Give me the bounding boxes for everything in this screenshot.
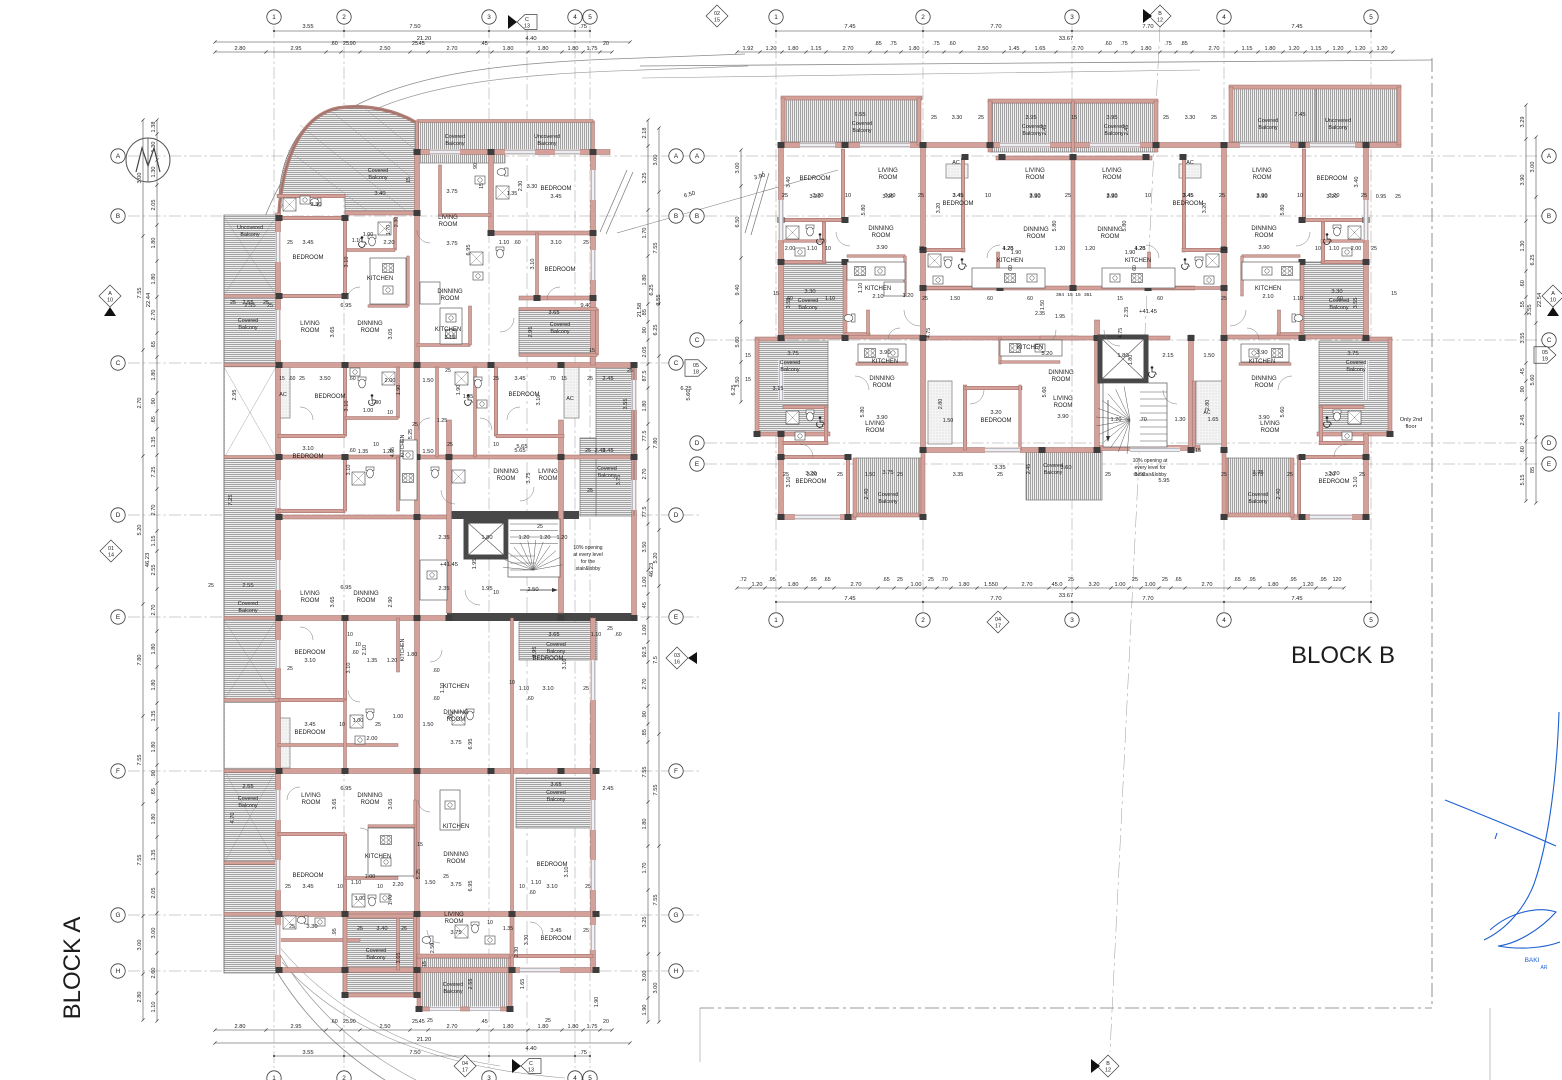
svg-text:1.75: 1.75 xyxy=(587,1024,598,1030)
svg-text:ROOM: ROOM xyxy=(361,800,380,806)
svg-text:3.75: 3.75 xyxy=(450,930,461,936)
svg-text:25: 25 xyxy=(583,240,589,246)
svg-text:1.30: 1.30 xyxy=(1520,241,1526,252)
svg-text:KITCHEN: KITCHEN xyxy=(365,854,391,860)
svg-text:.85: .85 xyxy=(874,41,881,47)
svg-text:4.70: 4.70 xyxy=(230,813,236,824)
svg-text:3.10: 3.10 xyxy=(346,465,352,476)
svg-text:+41.45: +41.45 xyxy=(440,562,458,568)
svg-text:3.10: 3.10 xyxy=(344,401,350,412)
svg-text:2.30: 2.30 xyxy=(394,217,400,228)
svg-text:H: H xyxy=(674,968,679,975)
svg-text:3.90: 3.90 xyxy=(1256,350,1267,356)
svg-text:LIVING: LIVING xyxy=(300,321,320,327)
svg-text:1.20: 1.20 xyxy=(1333,46,1344,52)
svg-text:BEDROOM: BEDROOM xyxy=(1172,201,1203,207)
svg-text:LIVING: LIVING xyxy=(438,215,458,221)
svg-text:2.20: 2.20 xyxy=(383,240,394,246)
svg-text:E: E xyxy=(695,461,699,468)
svg-text:.75: .75 xyxy=(932,41,939,47)
svg-text:1.80: 1.80 xyxy=(151,238,157,249)
svg-text:1.10: 1.10 xyxy=(351,880,362,886)
svg-text:.95: .95 xyxy=(1319,577,1326,583)
svg-text:5.65: 5.65 xyxy=(516,444,527,450)
svg-text:25: 25 xyxy=(1359,472,1365,478)
svg-text:1.25: 1.25 xyxy=(437,418,448,424)
svg-text:.65: .65 xyxy=(151,416,157,424)
svg-text:1.50: 1.50 xyxy=(1040,300,1046,310)
svg-text:25: 25 xyxy=(1287,472,1293,478)
svg-text:7.55: 7.55 xyxy=(137,855,143,866)
svg-text:3.30: 3.30 xyxy=(1185,115,1196,121)
svg-text:15: 15 xyxy=(1075,292,1081,298)
svg-text:.60: .60 xyxy=(348,376,355,382)
svg-text:7.80: 7.80 xyxy=(653,438,659,449)
svg-text:2.70: 2.70 xyxy=(151,505,157,516)
svg-text:1.80: 1.80 xyxy=(503,46,514,52)
svg-text:AC: AC xyxy=(279,392,287,398)
svg-text:3.75: 3.75 xyxy=(1253,472,1264,478)
svg-text:7.70: 7.70 xyxy=(990,596,1001,602)
svg-text:3: 3 xyxy=(487,14,491,21)
svg-text:KITCHEN: KITCHEN xyxy=(865,286,891,292)
svg-text:1.50: 1.50 xyxy=(425,880,436,886)
svg-text:2.70: 2.70 xyxy=(1209,46,1220,52)
svg-text:25: 25 xyxy=(287,240,293,246)
svg-text:3.00: 3.00 xyxy=(137,940,143,951)
svg-text:.65: .65 xyxy=(882,577,889,583)
svg-text:3.75: 3.75 xyxy=(446,189,457,195)
svg-text:stair&lobby: stair&lobby xyxy=(576,566,601,572)
svg-text:Balcony: Balcony xyxy=(443,989,462,995)
svg-text:KITCHEN: KITCHEN xyxy=(872,359,898,365)
svg-text:.60: .60 xyxy=(1520,446,1526,454)
svg-text:1.90: 1.90 xyxy=(594,997,600,1008)
svg-text:2.60: 2.60 xyxy=(151,968,157,979)
svg-text:10% opening at: 10% opening at xyxy=(1133,458,1168,464)
svg-text:1.35: 1.35 xyxy=(358,449,369,455)
svg-text:10: 10 xyxy=(509,680,515,686)
svg-text:5.80: 5.80 xyxy=(1280,205,1286,216)
svg-text:2.00: 2.00 xyxy=(385,378,396,384)
svg-text:.55: .55 xyxy=(1520,301,1526,309)
svg-text:C: C xyxy=(529,1061,533,1067)
svg-text:1.80: 1.80 xyxy=(538,46,549,52)
svg-text:BEDROOM: BEDROOM xyxy=(540,186,571,192)
svg-text:7.50: 7.50 xyxy=(409,1050,420,1056)
svg-text:25: 25 xyxy=(782,193,788,199)
svg-text:KITCHEN: KITCHEN xyxy=(1255,286,1281,292)
svg-text:2.80: 2.80 xyxy=(938,399,944,410)
svg-text:3.10: 3.10 xyxy=(344,257,350,268)
svg-text:25: 25 xyxy=(299,376,305,382)
svg-text:1.00: 1.00 xyxy=(363,232,374,238)
svg-text:5.60: 5.60 xyxy=(686,389,692,400)
svg-text:2.00: 2.00 xyxy=(785,246,796,252)
svg-text:3.20: 3.20 xyxy=(936,203,942,214)
svg-text:2.55: 2.55 xyxy=(244,303,255,309)
svg-text:7.55: 7.55 xyxy=(137,288,143,299)
svg-text:DINNING: DINNING xyxy=(1251,226,1277,232)
svg-text:ROOM: ROOM xyxy=(447,859,466,865)
svg-text:25: 25 xyxy=(1219,193,1225,199)
svg-text:BEDROOM: BEDROOM xyxy=(508,392,539,398)
svg-text:6.95: 6.95 xyxy=(340,303,351,309)
svg-text:3.65: 3.65 xyxy=(330,327,336,338)
svg-text:3.50: 3.50 xyxy=(319,376,330,382)
svg-text:4: 4 xyxy=(1222,617,1226,624)
svg-text:1.00: 1.00 xyxy=(353,718,364,724)
svg-text:1.80: 1.80 xyxy=(1117,353,1128,359)
svg-text:D: D xyxy=(695,440,700,447)
svg-text:10: 10 xyxy=(1550,297,1556,303)
svg-text:7.25: 7.25 xyxy=(151,467,157,478)
svg-text:1.00: 1.00 xyxy=(363,408,374,414)
svg-text:3.55: 3.55 xyxy=(302,24,313,30)
svg-text:.45: .45 xyxy=(1520,368,1526,376)
svg-text:3.20: 3.20 xyxy=(813,193,824,199)
svg-text:15: 15 xyxy=(714,17,720,23)
svg-text:LIVING: LIVING xyxy=(1025,168,1045,174)
svg-text:Covered: Covered xyxy=(546,790,566,796)
svg-text:B: B xyxy=(1547,213,1551,220)
svg-text:5: 5 xyxy=(588,1075,592,1080)
svg-text:25: 25 xyxy=(931,115,937,121)
svg-text:E: E xyxy=(116,614,120,621)
svg-text:25: 25 xyxy=(587,376,593,382)
svg-text:3.00: 3.00 xyxy=(653,155,659,166)
svg-text:B: B xyxy=(116,213,120,220)
svg-text:LIVING: LIVING xyxy=(1252,168,1272,174)
svg-text:2.15: 2.15 xyxy=(1162,353,1173,359)
svg-text:B: B xyxy=(1106,1061,1110,1067)
svg-text:.90: .90 xyxy=(1520,386,1526,394)
svg-text:3.45: 3.45 xyxy=(550,928,561,934)
svg-text:3.75: 3.75 xyxy=(616,475,622,486)
svg-text:1.92: 1.92 xyxy=(743,46,754,52)
svg-text:25: 25 xyxy=(1162,577,1168,583)
svg-text:.65: .65 xyxy=(1233,577,1240,583)
svg-text:3.15: 3.15 xyxy=(444,335,455,341)
svg-text:.95: .95 xyxy=(1248,577,1255,583)
svg-text:7.80: 7.80 xyxy=(137,655,143,666)
svg-text:1.50: 1.50 xyxy=(422,378,433,384)
svg-text:1.20: 1.20 xyxy=(519,535,530,541)
svg-text:3.00: 3.00 xyxy=(642,971,648,982)
svg-text:6.95: 6.95 xyxy=(340,786,351,792)
svg-text:1.00: 1.00 xyxy=(371,400,382,406)
svg-text:ROOM: ROOM xyxy=(441,296,460,302)
svg-text:3.60: 3.60 xyxy=(1060,465,1071,471)
svg-text:ROOM: ROOM xyxy=(301,328,320,334)
svg-text:25: 25 xyxy=(1221,472,1227,478)
svg-text:12: 12 xyxy=(1105,1067,1111,1073)
svg-text:3: 3 xyxy=(1070,617,1074,624)
svg-text:.60: .60 xyxy=(330,41,337,47)
svg-text:3.90: 3.90 xyxy=(885,193,896,199)
svg-text:C: C xyxy=(695,337,700,344)
svg-text:LIVING: LIVING xyxy=(1260,421,1280,427)
svg-text:2.70: 2.70 xyxy=(642,469,648,480)
svg-text:Uncovered: Uncovered xyxy=(1325,118,1351,124)
svg-text:3.65: 3.65 xyxy=(332,799,338,810)
svg-text:2.45: 2.45 xyxy=(595,448,606,454)
svg-text:1.50: 1.50 xyxy=(422,449,433,455)
svg-text:3.20: 3.20 xyxy=(990,410,1001,416)
svg-text:3.00: 3.00 xyxy=(1530,162,1536,173)
svg-text:3.00: 3.00 xyxy=(151,928,157,939)
svg-text:1.20: 1.20 xyxy=(1085,246,1096,252)
svg-text:03: 03 xyxy=(674,653,680,659)
svg-text:.90: .90 xyxy=(348,41,355,47)
svg-text:.60: .60 xyxy=(526,696,533,702)
svg-text:4.40: 4.40 xyxy=(525,36,536,42)
svg-text:ROOM: ROOM xyxy=(872,233,891,239)
svg-text:1.80: 1.80 xyxy=(481,535,492,541)
svg-text:1.80: 1.80 xyxy=(1268,582,1279,588)
svg-text:AC: AC xyxy=(566,396,574,402)
svg-text:6.25: 6.25 xyxy=(1530,255,1536,266)
svg-text:ROOM: ROOM xyxy=(873,383,892,389)
svg-text:5: 5 xyxy=(1369,14,1373,21)
svg-text:3.00: 3.00 xyxy=(653,983,659,994)
svg-text:1.80: 1.80 xyxy=(909,46,920,52)
svg-text:Covered: Covered xyxy=(238,318,258,324)
svg-text:3.30: 3.30 xyxy=(804,289,815,295)
svg-text:2.05: 2.05 xyxy=(642,347,648,358)
svg-text:45.0: 45.0 xyxy=(1052,582,1063,588)
svg-text:Covered: Covered xyxy=(366,948,386,954)
svg-text:25: 25 xyxy=(267,303,273,309)
svg-text:25: 25 xyxy=(1132,577,1138,583)
svg-text:.45: .45 xyxy=(417,1019,424,1025)
svg-text:25: 25 xyxy=(1068,577,1074,583)
svg-text:25: 25 xyxy=(1395,194,1401,200)
svg-text:3.20: 3.20 xyxy=(1325,472,1336,478)
svg-text:10: 10 xyxy=(519,884,525,890)
svg-text:7.5: 7.5 xyxy=(653,656,659,664)
svg-text:4.35: 4.35 xyxy=(390,447,396,457)
svg-text:15: 15 xyxy=(745,353,751,359)
svg-text:+41.45: +41.45 xyxy=(1139,309,1157,315)
svg-text:0.95: 0.95 xyxy=(1376,194,1387,200)
svg-text:AR: AR xyxy=(1541,965,1548,971)
svg-text:KITCHEN: KITCHEN xyxy=(1017,345,1043,351)
svg-text:2.70: 2.70 xyxy=(843,46,854,52)
svg-text:1.65: 1.65 xyxy=(520,979,526,990)
svg-text:1.20: 1.20 xyxy=(1111,417,1122,423)
svg-text:2.80: 2.80 xyxy=(235,46,246,52)
svg-text:G: G xyxy=(116,912,121,919)
svg-text:3.40: 3.40 xyxy=(786,177,792,188)
svg-text:3.29: 3.29 xyxy=(1520,117,1526,128)
svg-text:25: 25 xyxy=(230,300,236,306)
svg-text:15: 15 xyxy=(422,961,428,967)
svg-text:AC: AC xyxy=(952,160,960,166)
svg-text:Balcony: Balcony xyxy=(1022,131,1041,137)
svg-text:1.80: 1.80 xyxy=(788,46,799,52)
svg-text:3.25: 3.25 xyxy=(642,173,648,184)
svg-text:60: 60 xyxy=(1132,265,1138,271)
svg-text:3.10: 3.10 xyxy=(1353,477,1359,488)
svg-text:KITCHEN: KITCHEN xyxy=(443,824,469,830)
svg-text:DINNING: DINNING xyxy=(1251,376,1277,382)
svg-text:6.95: 6.95 xyxy=(466,245,472,256)
svg-text:.65: .65 xyxy=(823,577,830,583)
svg-text:16: 16 xyxy=(674,659,680,665)
svg-text:1.70: 1.70 xyxy=(386,225,392,236)
svg-text:ROOM: ROOM xyxy=(1026,175,1045,181)
svg-text:.60: .60 xyxy=(1520,280,1526,288)
svg-text:2.50: 2.50 xyxy=(527,587,538,593)
svg-text:2.35: 2.35 xyxy=(438,586,449,592)
svg-text:3: 3 xyxy=(1070,14,1074,21)
svg-text:.95: .95 xyxy=(332,928,338,936)
svg-text:7.55: 7.55 xyxy=(653,243,659,254)
svg-text:3.30: 3.30 xyxy=(952,115,963,121)
svg-text:3.10: 3.10 xyxy=(546,884,557,890)
svg-text:25: 25 xyxy=(357,926,363,932)
svg-text:04: 04 xyxy=(995,617,1001,623)
svg-text:3.75: 3.75 xyxy=(450,740,461,746)
svg-text:1.95: 1.95 xyxy=(1055,314,1065,320)
svg-text:Covered: Covered xyxy=(238,796,258,802)
svg-text:1.80: 1.80 xyxy=(538,1024,549,1030)
svg-text:2.18: 2.18 xyxy=(642,128,648,139)
svg-text:25: 25 xyxy=(545,1018,551,1024)
svg-text:3.65: 3.65 xyxy=(396,953,402,964)
svg-text:BEDROOM: BEDROOM xyxy=(294,650,325,656)
svg-text:10: 10 xyxy=(355,642,361,648)
svg-text:3.30: 3.30 xyxy=(310,202,321,208)
svg-text:1.80: 1.80 xyxy=(407,652,418,658)
svg-text:.90: .90 xyxy=(151,398,157,406)
svg-text:LIVING: LIVING xyxy=(538,469,558,475)
svg-text:2.70: 2.70 xyxy=(151,605,157,616)
svg-text:.65: .65 xyxy=(151,341,157,349)
svg-text:15: 15 xyxy=(773,291,779,297)
svg-text:3.00: 3.00 xyxy=(735,163,741,174)
svg-text:ROOM: ROOM xyxy=(357,598,376,604)
svg-text:3.30: 3.30 xyxy=(524,935,530,946)
svg-text:4: 4 xyxy=(573,1075,577,1080)
svg-text:1.10: 1.10 xyxy=(807,246,818,252)
svg-text:3.90: 3.90 xyxy=(1030,193,1041,199)
svg-text:1.10: 1.10 xyxy=(1293,296,1303,302)
svg-text:15: 15 xyxy=(1195,448,1201,454)
svg-text:1.35: 1.35 xyxy=(507,191,518,197)
svg-text:ROOM: ROOM xyxy=(1027,234,1046,240)
svg-text:DINNING: DINNING xyxy=(357,321,383,327)
svg-text:Covered: Covered xyxy=(1258,118,1278,124)
svg-text:10: 10 xyxy=(825,246,831,252)
svg-text:at every level: at every level xyxy=(573,552,602,558)
svg-text:1.80: 1.80 xyxy=(642,819,648,830)
svg-text:7.55: 7.55 xyxy=(653,895,659,906)
svg-text:3.30: 3.30 xyxy=(306,924,317,930)
svg-text:ROOM: ROOM xyxy=(866,428,885,434)
svg-text:ROOM: ROOM xyxy=(1253,175,1272,181)
svg-text:DINNING: DINNING xyxy=(443,710,469,716)
svg-text:.90: .90 xyxy=(642,711,648,719)
svg-text:3.75: 3.75 xyxy=(526,473,532,484)
svg-text:3.90: 3.90 xyxy=(1257,193,1268,199)
svg-text:25: 25 xyxy=(585,884,591,890)
svg-text:DINNING: DINNING xyxy=(1048,370,1074,376)
svg-text:1.90: 1.90 xyxy=(396,385,402,396)
svg-text:5.80: 5.80 xyxy=(1122,221,1128,232)
svg-text:1.80: 1.80 xyxy=(568,1024,579,1030)
svg-text:Covered: Covered xyxy=(368,168,388,174)
svg-text:25: 25 xyxy=(287,666,293,672)
svg-text:Balcony: Balcony xyxy=(550,329,569,335)
svg-text:10: 10 xyxy=(347,632,353,638)
svg-text:ROOM: ROOM xyxy=(1103,175,1122,181)
svg-text:7.55: 7.55 xyxy=(653,785,659,796)
svg-text:Covered: Covered xyxy=(1022,124,1042,130)
svg-text:25: 25 xyxy=(537,524,543,530)
svg-text:1.15: 1.15 xyxy=(1242,46,1253,52)
svg-text:3.10: 3.10 xyxy=(562,659,568,670)
svg-text:22.54: 22.54 xyxy=(1537,292,1543,307)
svg-text:ROOM: ROOM xyxy=(1261,428,1280,434)
svg-text:.60: .60 xyxy=(330,1019,337,1025)
svg-text:25: 25 xyxy=(1221,246,1227,252)
svg-text:1.80: 1.80 xyxy=(1141,46,1152,52)
svg-text:1.10: 1.10 xyxy=(825,296,835,302)
svg-text:1.80: 1.80 xyxy=(151,680,157,691)
svg-text:1.80: 1.80 xyxy=(151,742,157,753)
svg-text:DINNING: DINNING xyxy=(1097,227,1123,233)
svg-text:25: 25 xyxy=(583,686,589,692)
svg-text:3.10: 3.10 xyxy=(786,477,792,488)
svg-text:3.20: 3.20 xyxy=(1329,193,1340,199)
svg-text:2.10: 2.10 xyxy=(872,294,883,300)
svg-text:85: 85 xyxy=(1530,467,1536,473)
svg-text:25: 25 xyxy=(445,368,451,374)
svg-text:.75: .75 xyxy=(889,41,896,47)
svg-text:12: 12 xyxy=(1157,17,1163,23)
svg-text:2.95: 2.95 xyxy=(532,647,538,658)
svg-text:3.65: 3.65 xyxy=(548,632,559,638)
svg-text:A: A xyxy=(674,153,679,160)
svg-text:77.5: 77.5 xyxy=(642,431,648,442)
svg-text:ROOM: ROOM xyxy=(879,175,898,181)
svg-text:ROOM: ROOM xyxy=(302,800,321,806)
svg-text:14: 14 xyxy=(108,552,114,558)
svg-text:25: 25 xyxy=(897,472,903,478)
svg-text:2: 2 xyxy=(921,14,925,21)
svg-text:Covered: Covered xyxy=(445,134,465,140)
svg-text:1.10: 1.10 xyxy=(1329,246,1340,252)
svg-text:6.95: 6.95 xyxy=(340,585,351,591)
svg-text:10% opening: 10% opening xyxy=(573,545,602,551)
svg-text:10: 10 xyxy=(1145,193,1151,199)
svg-text:2.70: 2.70 xyxy=(851,582,862,588)
svg-text:Balcony: Balcony xyxy=(547,649,566,655)
svg-text:1.95: 1.95 xyxy=(472,559,478,570)
svg-text:Balcony: Balcony xyxy=(878,499,897,505)
svg-text:90: 90 xyxy=(473,163,479,169)
svg-text:10: 10 xyxy=(493,442,499,448)
svg-text:.95: .95 xyxy=(809,577,816,583)
svg-text:05: 05 xyxy=(1542,350,1548,356)
svg-text:46.23: 46.23 xyxy=(649,563,655,578)
svg-text:77.5: 77.5 xyxy=(642,507,648,518)
svg-text:60: 60 xyxy=(1337,296,1343,302)
svg-text:Balcony: Balcony xyxy=(547,797,566,803)
svg-text:1.20: 1.20 xyxy=(903,293,914,299)
